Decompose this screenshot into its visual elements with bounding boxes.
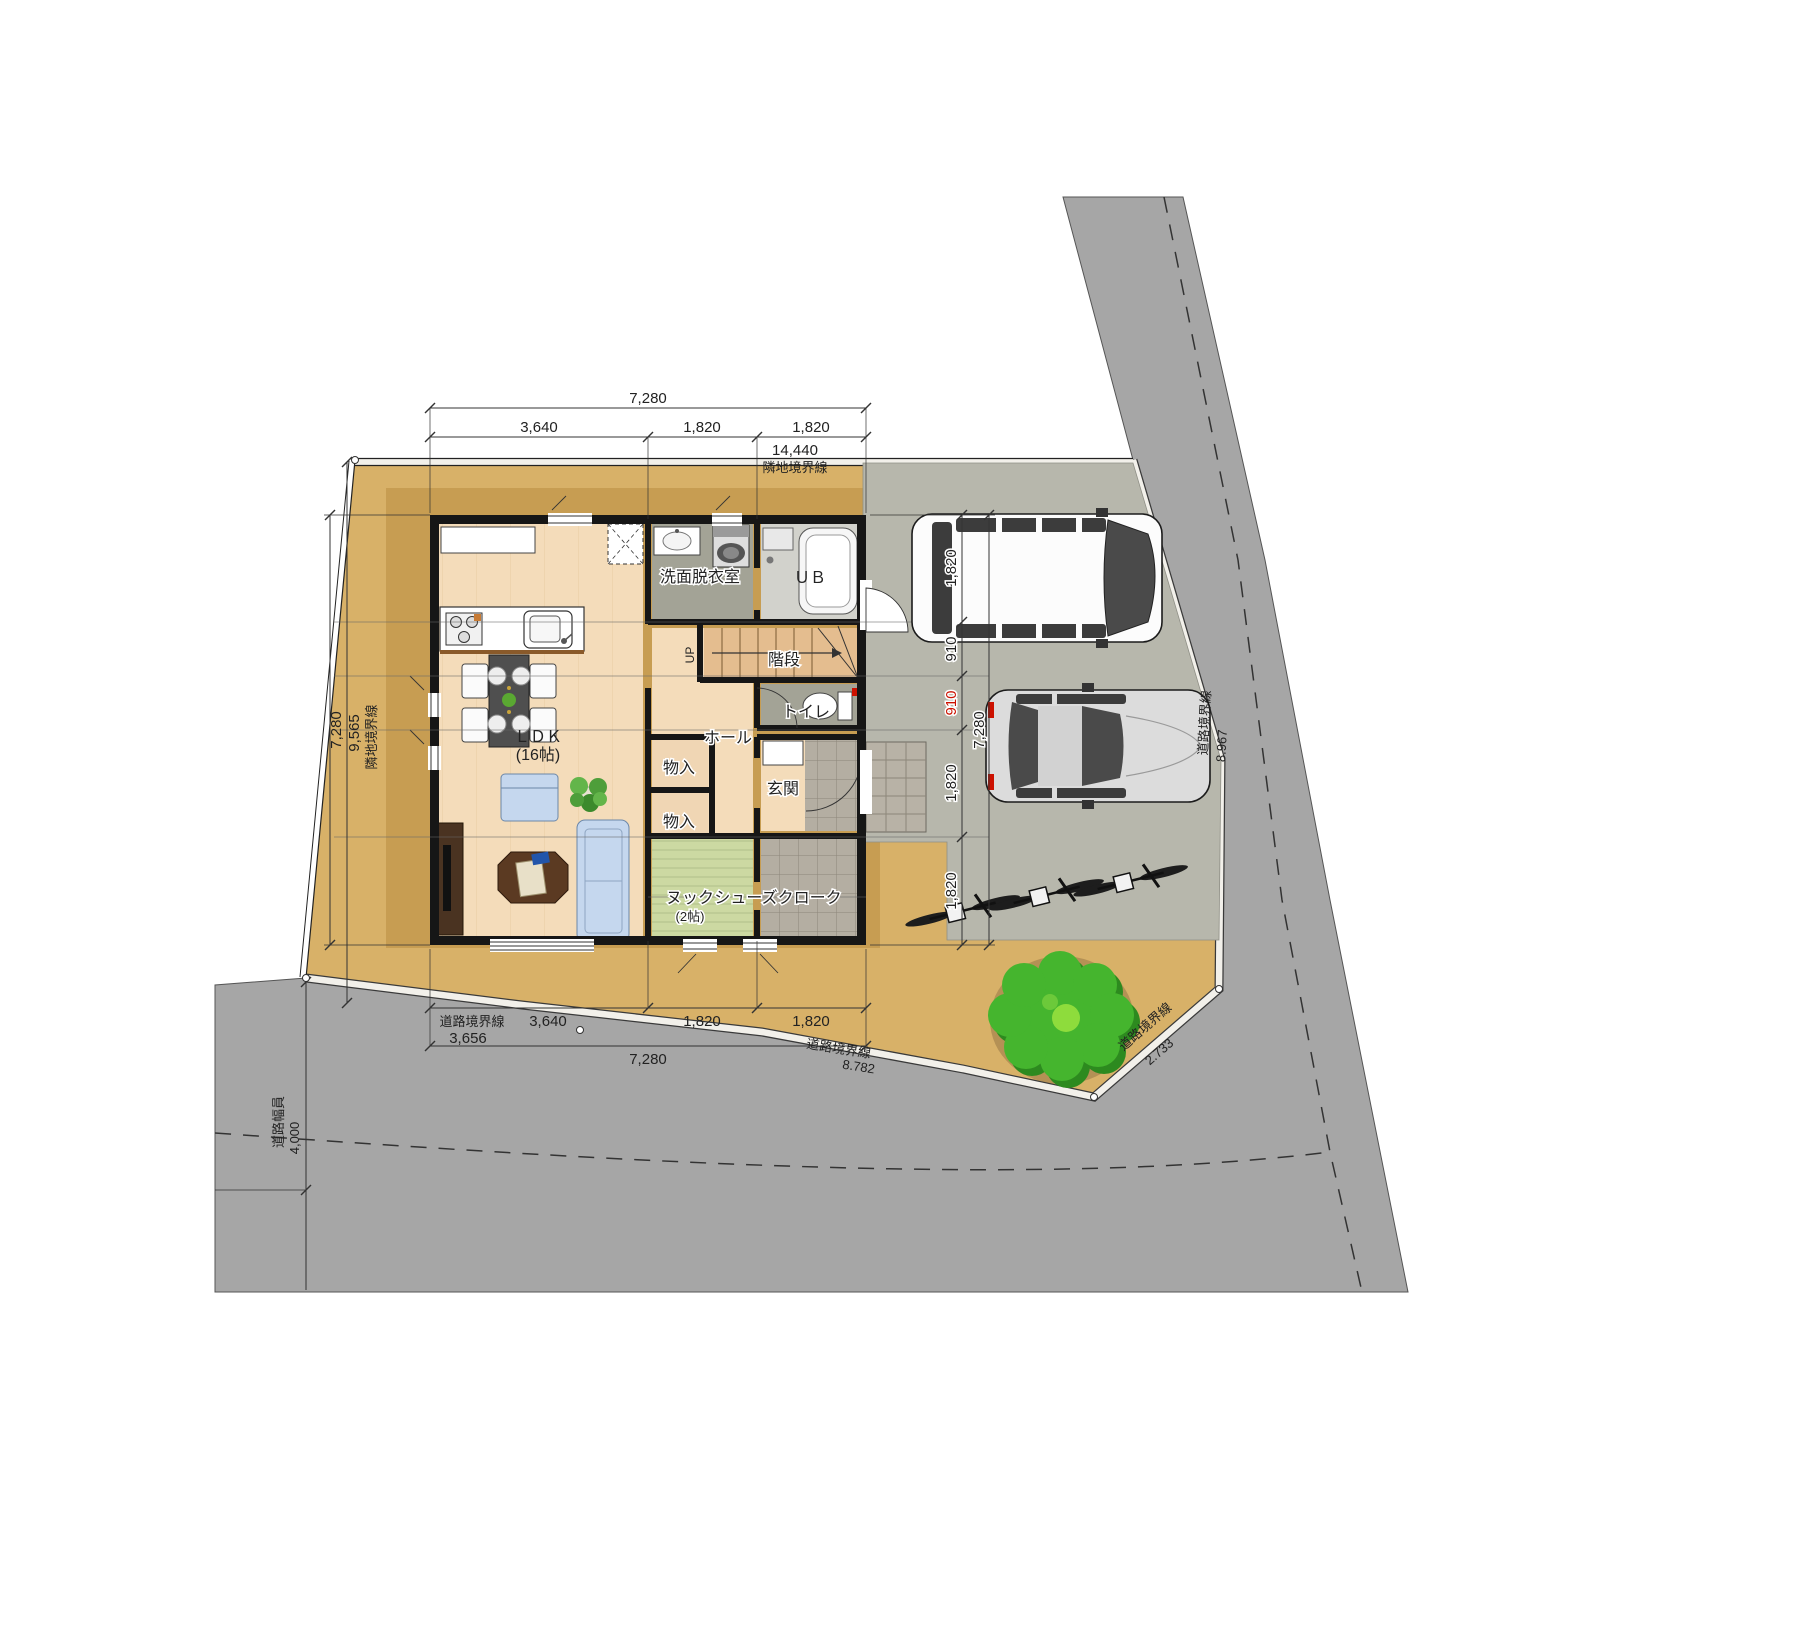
label-stairs: 階段 bbox=[768, 651, 800, 669]
label-entrance: 玄関 bbox=[767, 780, 799, 798]
dim-east-seg1: 1,820 bbox=[943, 549, 960, 587]
dim-east-total: 7,280 bbox=[971, 711, 988, 749]
dim-east-road-len: 8.967 bbox=[1213, 729, 1230, 762]
car-sedan bbox=[986, 683, 1210, 809]
label-hall: ホール bbox=[704, 730, 752, 747]
entrance-porch bbox=[866, 742, 926, 832]
label-toilet: トイレ bbox=[782, 704, 830, 721]
dim-west-site: 9,565 bbox=[346, 714, 363, 752]
shoe-cabinet bbox=[763, 741, 803, 765]
label-west-boundary: 隣地境界線 bbox=[364, 704, 379, 769]
dim-east-seg2: 910 bbox=[943, 636, 960, 661]
ottoman bbox=[501, 774, 558, 821]
label-nook-size: (2帖) bbox=[676, 909, 705, 924]
dim-top-seg2: 1,820 bbox=[683, 419, 721, 436]
chair-icon bbox=[530, 664, 556, 698]
label-road-width: 道路幅員 bbox=[271, 1096, 286, 1148]
dim-south-seg1: 3,640 bbox=[529, 1013, 567, 1030]
site-plan-drawing: ＬＤＫ (16帖) 洗面脱衣室 ＵＢ 階段 UP トイレ ホール 物入 物入 玄… bbox=[0, 0, 1799, 1648]
label-south-boundary: 道路境界線 bbox=[439, 1014, 504, 1029]
dim-south-seg2: 1,820 bbox=[683, 1013, 721, 1030]
dim-site-north: 14,440 bbox=[772, 442, 818, 459]
dim-top-seg3: 1,820 bbox=[792, 419, 830, 436]
dim-west-house: 7,280 bbox=[328, 711, 345, 749]
kitchen-cupboard bbox=[441, 527, 535, 553]
dim-road-width: 4,000 bbox=[287, 1122, 302, 1155]
dim-top-total: 7,280 bbox=[629, 390, 667, 407]
label-storage-lower: 物入 bbox=[663, 813, 695, 831]
tv-icon bbox=[443, 845, 451, 911]
chair-icon bbox=[462, 664, 488, 698]
label-shoe-closet: シューズクローク bbox=[714, 889, 841, 907]
label-north-boundary: 隣地境界線 bbox=[762, 460, 827, 475]
label-bath: ＵＢ bbox=[794, 570, 826, 587]
label-up: UP bbox=[683, 647, 697, 664]
label-storage-upper: 物入 bbox=[663, 759, 695, 777]
label-nook: ヌック bbox=[666, 889, 714, 907]
bath-counter bbox=[763, 528, 793, 550]
label-ldk: ＬＤＫ bbox=[514, 729, 562, 746]
dim-east-seg5: 1,820 bbox=[943, 872, 960, 910]
refrigerator-space bbox=[608, 524, 643, 564]
dim-top-seg1: 3,640 bbox=[520, 419, 558, 436]
dim-east-seg3: 910 bbox=[943, 690, 960, 715]
chair-icon bbox=[462, 708, 488, 742]
label-ldk-size: (16帖) bbox=[516, 746, 560, 764]
table-plant-icon bbox=[502, 693, 516, 707]
dim-south-seg3: 1,820 bbox=[792, 1013, 830, 1030]
label-washroom: 洗面脱衣室 bbox=[660, 568, 740, 586]
shoe-closet-grid bbox=[761, 838, 862, 936]
dim-south-boundary-seg: 3,656 bbox=[449, 1030, 487, 1047]
dim-east-seg4: 1,820 bbox=[943, 764, 960, 802]
dim-south-total: 7,280 bbox=[629, 1051, 667, 1068]
